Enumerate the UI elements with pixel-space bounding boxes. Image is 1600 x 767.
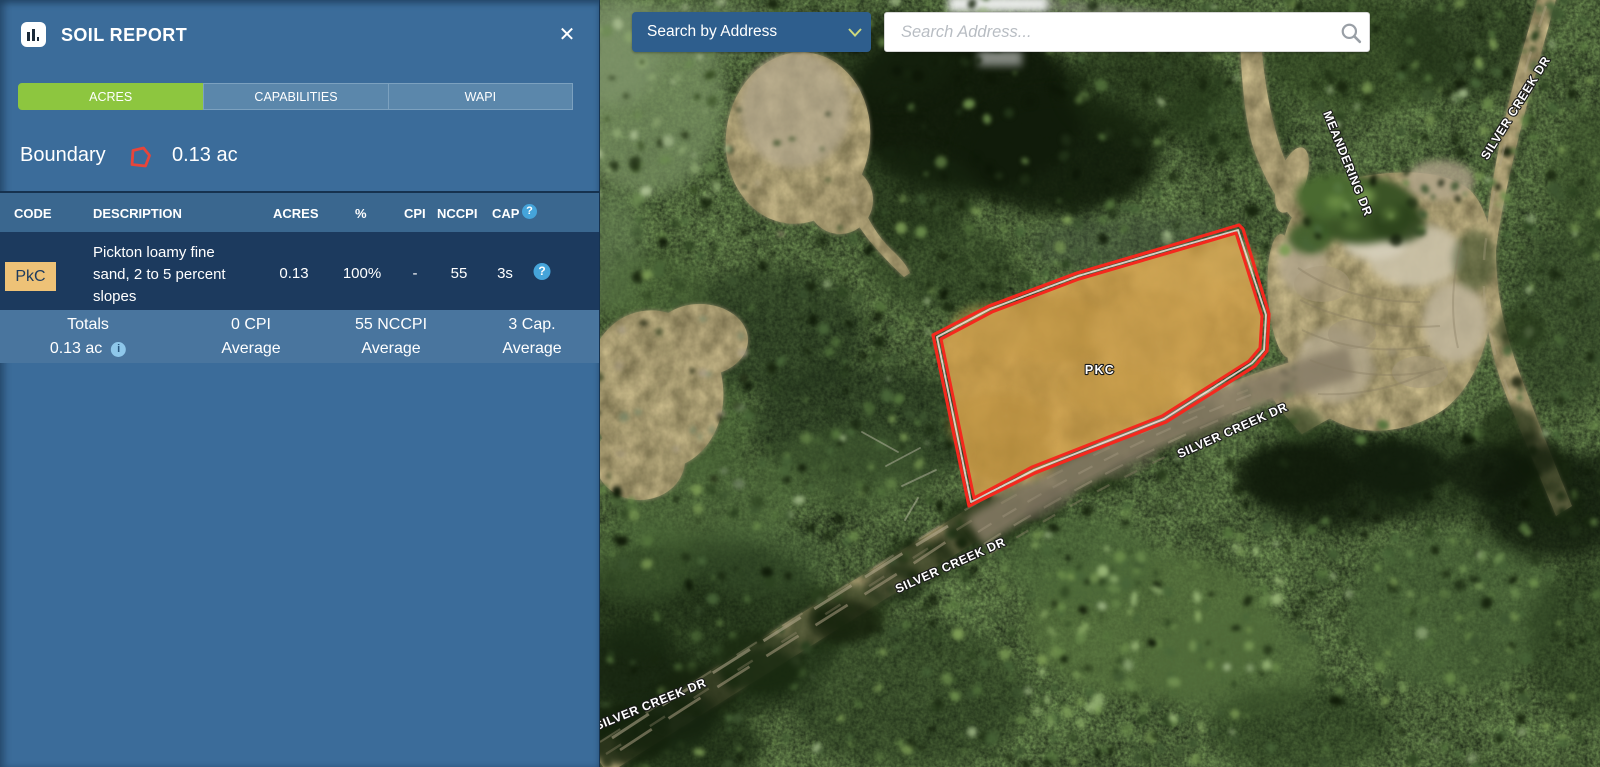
svg-text:PKC: PKC <box>1085 363 1115 377</box>
